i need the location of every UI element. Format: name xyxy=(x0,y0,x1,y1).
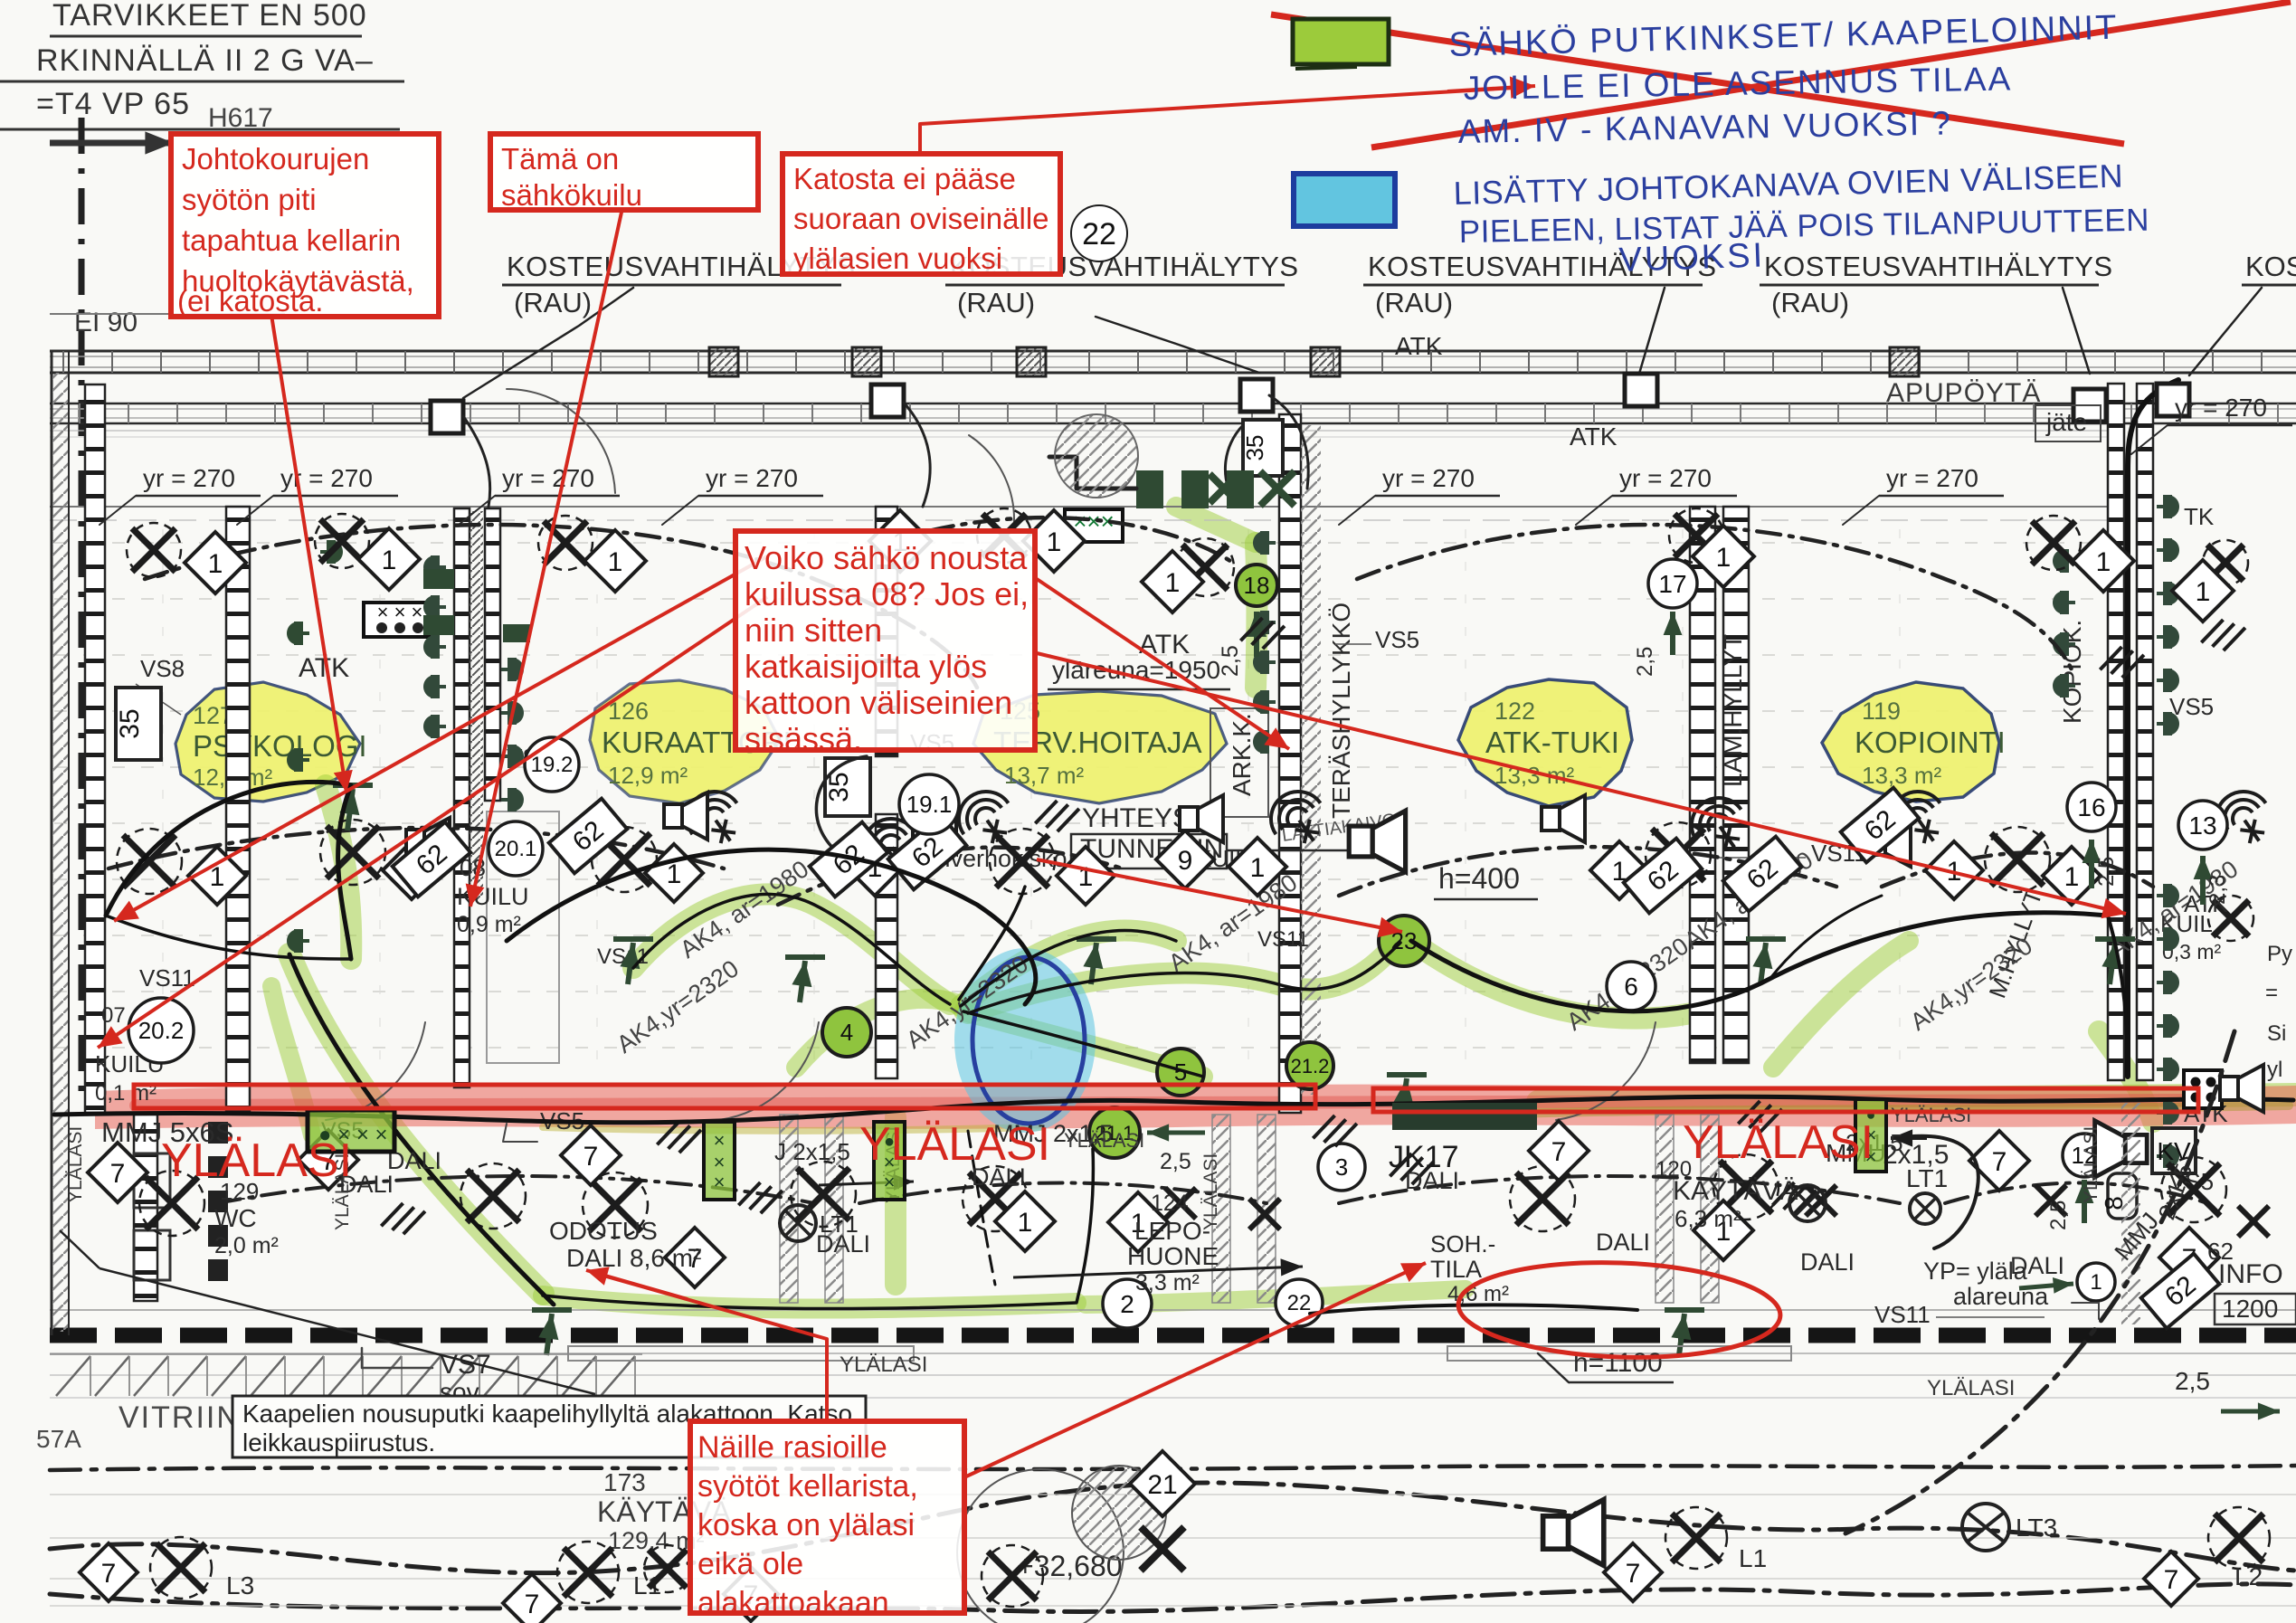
svg-text:7: 7 xyxy=(2164,1565,2179,1595)
svg-text:syötön piti: syötön piti xyxy=(182,183,317,216)
svg-text:9: 9 xyxy=(1178,846,1193,876)
svg-text:7: 7 xyxy=(1551,1137,1567,1167)
svg-text:3,3 m²: 3,3 m² xyxy=(1135,1270,1200,1296)
svg-text:07: 07 xyxy=(101,1003,126,1028)
svg-text:×: × xyxy=(714,1171,726,1193)
svg-text:L1: L1 xyxy=(1739,1544,1767,1572)
svg-text:22: 22 xyxy=(1082,217,1116,252)
svg-text:VS8: VS8 xyxy=(140,655,185,682)
svg-text:1: 1 xyxy=(208,549,223,579)
svg-text:Si: Si xyxy=(2267,1021,2286,1046)
svg-text:eikä ole: eikä ole xyxy=(697,1547,803,1581)
svg-text:35: 35 xyxy=(115,708,145,738)
svg-text:SOH.-: SOH.- xyxy=(1430,1230,1495,1258)
svg-text:ODOTUS: ODOTUS xyxy=(549,1217,658,1245)
svg-text:20.1: 20.1 xyxy=(495,837,537,861)
svg-text:Py: Py xyxy=(2267,942,2292,966)
svg-text:LT1: LT1 xyxy=(1906,1164,1948,1192)
svg-text:RKINNÄLLÄ II 2 G VA–: RKINNÄLLÄ II 2 G VA– xyxy=(36,43,374,78)
svg-text:Näille rasioille: Näille rasioille xyxy=(697,1430,887,1465)
svg-text:12,9 m²: 12,9 m² xyxy=(608,762,688,789)
svg-text:YLÄLASI: YLÄLASI xyxy=(2081,1126,2102,1203)
svg-text:1: 1 xyxy=(1250,853,1266,883)
svg-text:19.1: 19.1 xyxy=(906,791,953,818)
svg-text:=T4 VP 65: =T4 VP 65 xyxy=(36,87,190,121)
svg-text:YLÄLASI: YLÄLASI xyxy=(1683,1116,1874,1169)
svg-text:2,5: 2,5 xyxy=(1633,647,1657,677)
svg-text:L2: L2 xyxy=(2234,1562,2263,1590)
svg-text:ylälasien vuoksi: ylälasien vuoksi xyxy=(793,242,1002,275)
svg-text:2,5: 2,5 xyxy=(2046,1201,2071,1230)
svg-text:TILA: TILA xyxy=(1430,1256,1482,1283)
svg-text:×: × xyxy=(714,1129,726,1152)
svg-text:L3: L3 xyxy=(226,1571,254,1599)
svg-text:jäte: jäte xyxy=(2045,408,2087,436)
svg-text:2,0 m²: 2,0 m² xyxy=(214,1233,279,1258)
svg-text:1: 1 xyxy=(608,547,623,577)
svg-text:alakattoakaan: alakattoakaan xyxy=(697,1586,889,1620)
svg-text:21.2: 21.2 xyxy=(1291,1055,1330,1077)
svg-text:LEPO-: LEPO- xyxy=(1134,1217,1210,1245)
svg-text:=: = xyxy=(2265,981,2278,1005)
svg-text:× × ×: × × × xyxy=(377,601,423,623)
svg-text:YLÄLASI: YLÄLASI xyxy=(859,1118,1050,1171)
svg-text:ATK: ATK xyxy=(1570,422,1618,451)
svg-text:tapahtua kellarin: tapahtua kellarin xyxy=(182,223,401,257)
svg-text:TK: TK xyxy=(2184,503,2215,530)
svg-text:119: 119 xyxy=(1862,698,1901,725)
svg-text:16: 16 xyxy=(2077,793,2105,821)
svg-text:13: 13 xyxy=(2188,811,2216,840)
svg-text:KOSTEUSVAHTIHÄLYTYS: KOSTEUSVAHTIHÄLYTYS xyxy=(1764,251,2113,282)
svg-text:yr = 270: yr = 270 xyxy=(2175,394,2267,422)
svg-text:J 2x1,5: J 2x1,5 xyxy=(774,1138,850,1165)
svg-text:KOS: KOS xyxy=(2245,251,2296,282)
svg-text:13,7 m²: 13,7 m² xyxy=(1004,762,1084,789)
svg-text:yr = 270: yr = 270 xyxy=(1886,464,1978,492)
svg-text:yr = 270: yr = 270 xyxy=(706,464,798,492)
svg-text:YLÄLASI: YLÄLASI xyxy=(840,1352,927,1377)
svg-text:1200: 1200 xyxy=(2222,1295,2278,1323)
svg-text:1: 1 xyxy=(2096,547,2111,577)
svg-text:YLÄLASI: YLÄLASI xyxy=(1891,1104,1971,1126)
svg-text:6,3 m²: 6,3 m² xyxy=(1675,1205,1741,1232)
svg-text:2: 2 xyxy=(1120,1290,1134,1318)
svg-text:h=1100: h=1100 xyxy=(1573,1348,1663,1378)
svg-text:7: 7 xyxy=(525,1590,540,1619)
svg-text:2,5: 2,5 xyxy=(2094,857,2119,887)
svg-text:×: × xyxy=(884,1171,896,1193)
svg-text:2,3: 2,3 xyxy=(2206,875,2230,905)
svg-text:leikkauspiirustus.: leikkauspiirustus. xyxy=(242,1428,435,1457)
svg-text:yr = 270: yr = 270 xyxy=(1382,464,1475,492)
svg-text:1: 1 xyxy=(1716,543,1731,573)
svg-text:124: 124 xyxy=(1151,1191,1189,1216)
svg-text:WC: WC xyxy=(214,1204,257,1232)
svg-text:LAM.HYLLYT: LAM.HYLLYT xyxy=(1719,634,1747,787)
svg-text:YP= yläla: YP= yläla xyxy=(1923,1258,2028,1285)
svg-text:7: 7 xyxy=(1626,1559,1641,1589)
svg-text:13,3 m²: 13,3 m² xyxy=(1862,762,1941,789)
svg-text:suoraan oviseinälle: suoraan oviseinälle xyxy=(793,202,1049,235)
svg-text:7: 7 xyxy=(101,1559,117,1589)
svg-text:LT3: LT3 xyxy=(2016,1514,2057,1542)
svg-text:h=400: h=400 xyxy=(1438,862,1520,895)
svg-text:VS5: VS5 xyxy=(1375,626,1419,653)
svg-text:YLÄLASI: YLÄLASI xyxy=(1927,1376,2015,1400)
svg-text:0,9 m²: 0,9 m² xyxy=(457,912,521,937)
svg-text:7: 7 xyxy=(1992,1147,2007,1177)
svg-text:Katosta ei pääse: Katosta ei pääse xyxy=(793,162,1016,195)
svg-text:7: 7 xyxy=(110,1159,126,1189)
svg-text:alareuna: alareuna xyxy=(1953,1283,2049,1310)
svg-text:DALI: DALI xyxy=(1596,1229,1650,1256)
svg-text:YLÄLASI: YLÄLASI xyxy=(161,1134,352,1187)
svg-text:JK17: JK17 xyxy=(1389,1140,1459,1174)
svg-text:1: 1 xyxy=(1165,568,1181,598)
svg-text:122: 122 xyxy=(1494,698,1535,725)
svg-text:(RAU): (RAU) xyxy=(1375,287,1453,318)
svg-text:6: 6 xyxy=(1624,973,1638,1001)
svg-text:Tämä on: Tämä on xyxy=(501,142,619,176)
svg-text:21: 21 xyxy=(1147,1470,1177,1500)
svg-text:yr = 270: yr = 270 xyxy=(502,464,594,492)
svg-text:koska on ylälasi: koska on ylälasi xyxy=(697,1508,915,1542)
svg-text:19.2: 19.2 xyxy=(531,753,574,777)
svg-text:(RAU): (RAU) xyxy=(957,287,1035,318)
svg-text:niin sitten: niin sitten xyxy=(745,612,882,649)
svg-text:(ei katosta.: (ei katosta. xyxy=(177,284,323,318)
svg-text:7: 7 xyxy=(583,1142,599,1172)
svg-text:35: 35 xyxy=(1241,435,1268,461)
svg-text:katkaisijoilta ylös: katkaisijoilta ylös xyxy=(745,648,987,685)
svg-text:H617: H617 xyxy=(208,103,273,133)
svg-text:yläreuna=1950: yläreuna=1950 xyxy=(1052,656,1220,684)
svg-text:APUPÖYTÄ: APUPÖYTÄ xyxy=(1886,378,2041,408)
svg-text:VS11: VS11 xyxy=(1874,1301,1931,1328)
svg-text:yr = 270: yr = 270 xyxy=(1619,464,1712,492)
svg-text:TARVIKKEET EN 500: TARVIKKEET EN 500 xyxy=(52,0,367,33)
svg-text:VUOKSI: VUOKSI xyxy=(1618,236,1766,280)
svg-text:yl: yl xyxy=(2267,1058,2282,1082)
svg-text:LT1: LT1 xyxy=(820,1210,859,1238)
svg-text:(RAU): (RAU) xyxy=(514,287,592,318)
svg-text:20.2: 20.2 xyxy=(138,1017,185,1044)
svg-text:2,5: 2,5 xyxy=(2175,1367,2210,1395)
svg-text:YLÄLASI: YLÄLASI xyxy=(1200,1153,1221,1230)
svg-text:YHTEYS: YHTEYS xyxy=(1082,803,1191,833)
svg-text:17: 17 xyxy=(1658,570,1686,598)
svg-text:57A: 57A xyxy=(36,1425,81,1453)
svg-text:173: 173 xyxy=(603,1468,646,1496)
svg-text:DALI 8,6 m²: DALI 8,6 m² xyxy=(566,1244,701,1272)
svg-text:22: 22 xyxy=(1287,1291,1312,1315)
svg-text:2,5: 2,5 xyxy=(1160,1149,1191,1174)
svg-text:kuilussa 08? Jos ei,: kuilussa 08? Jos ei, xyxy=(745,575,1029,612)
svg-text:yr = 270: yr = 270 xyxy=(143,464,235,492)
svg-text:kattoon väliseinien: kattoon väliseinien xyxy=(745,684,1012,721)
svg-text:1: 1 xyxy=(2196,577,2211,607)
svg-text:2,5: 2,5 xyxy=(1218,645,1243,677)
svg-text:HUONE: HUONE xyxy=(1127,1242,1219,1270)
svg-text:62: 62 xyxy=(2207,1238,2234,1265)
svg-text:1: 1 xyxy=(2064,862,2080,892)
svg-text:VS11: VS11 xyxy=(1257,927,1309,952)
svg-text:1: 1 xyxy=(382,546,397,575)
svg-text:1: 1 xyxy=(2090,1270,2102,1295)
svg-text:1: 1 xyxy=(1047,527,1062,557)
svg-text:syötöt kellarista,: syötöt kellarista, xyxy=(697,1469,918,1504)
svg-text:YLÄLASI: YLÄLASI xyxy=(65,1126,86,1203)
svg-text:4: 4 xyxy=(840,1019,853,1046)
svg-text:1: 1 xyxy=(1018,1208,1033,1238)
svg-text:sisässä.: sisässä. xyxy=(745,720,862,757)
svg-text:3: 3 xyxy=(1335,1153,1348,1181)
svg-text:KOPIOINTI: KOPIOINTI xyxy=(1855,726,2006,759)
svg-text:ATK-TUKI: ATK-TUKI xyxy=(1485,726,1619,759)
svg-text:DALI: DALI xyxy=(1800,1248,1855,1276)
svg-text:Johtokourujen: Johtokourujen xyxy=(182,142,369,176)
svg-text:Voiko sähkö nousta: Voiko sähkö nousta xyxy=(745,539,1028,576)
svg-text:EI 90: EI 90 xyxy=(74,308,138,337)
svg-text:(RAU): (RAU) xyxy=(1771,287,1849,318)
svg-text:18: 18 xyxy=(1244,572,1270,599)
svg-text:ATK: ATK xyxy=(1395,332,1443,360)
svg-text:sähkökuilu: sähkökuilu xyxy=(501,178,642,212)
svg-text:YLÄLASI: YLÄLASI xyxy=(1064,1129,1144,1152)
svg-text:TERÄSHYLLYKKÖ: TERÄSHYLLYKKÖ xyxy=(1327,603,1355,819)
